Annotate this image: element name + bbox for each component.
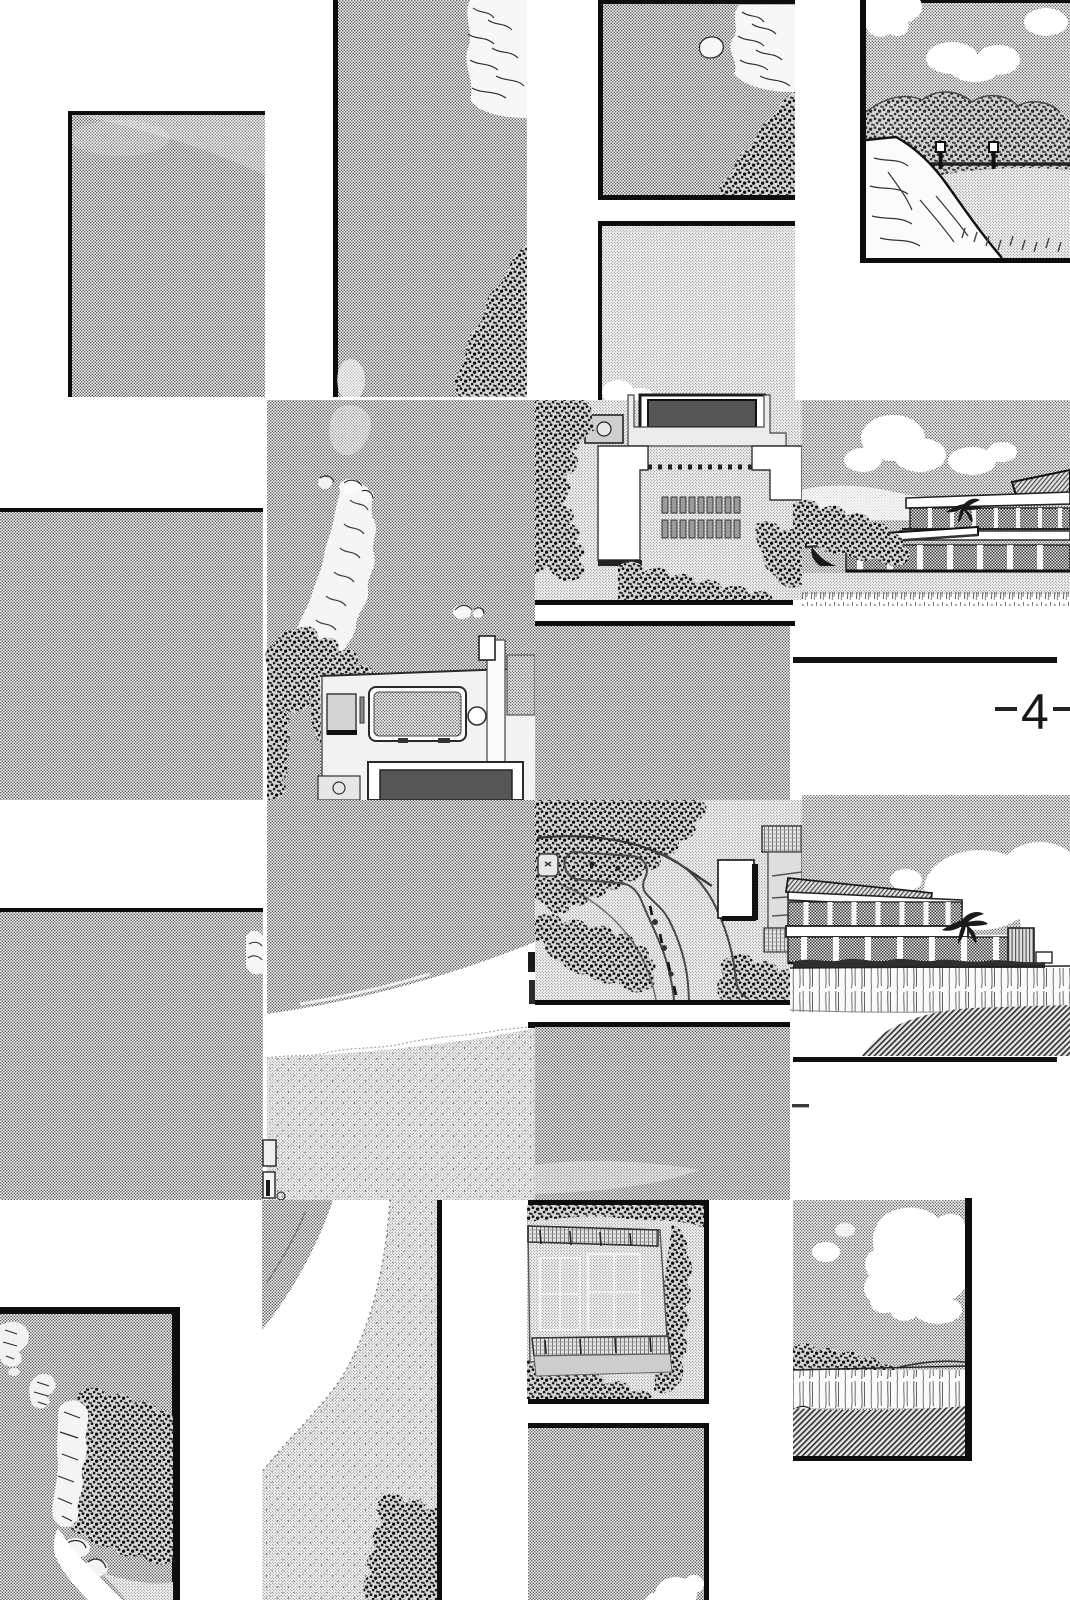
svg-text:4: 4 [1021,684,1049,740]
